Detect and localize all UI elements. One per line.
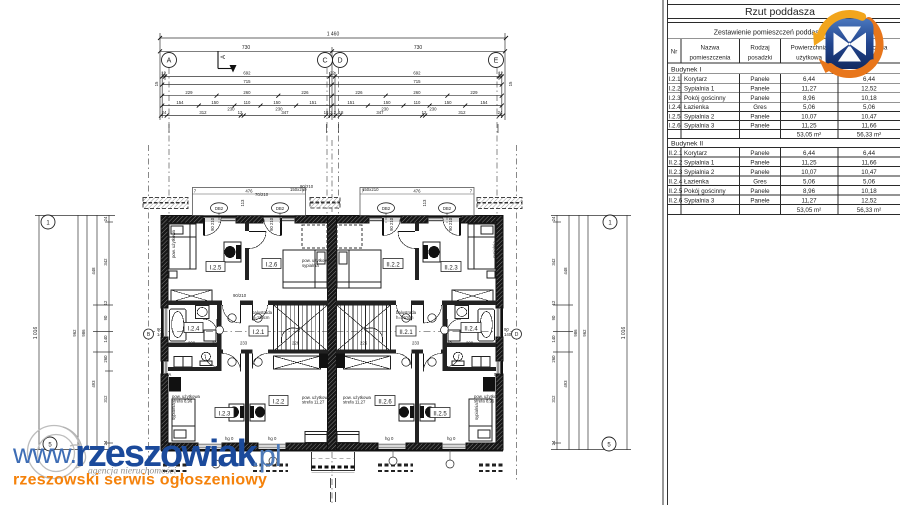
svg-text:11,27: 11,27 (801, 85, 817, 92)
svg-text:sypialnia: sypialnia (474, 403, 479, 420)
svg-text:11,25: 11,25 (801, 123, 817, 130)
svg-text:sypialnia: sypialnia (302, 263, 319, 268)
svg-text:476: 476 (245, 189, 253, 194)
svg-text:11,66: 11,66 (861, 159, 877, 166)
svg-text:I.2.5: I.2.5 (210, 265, 222, 271)
svg-text:sypialnia: sypialnia (171, 403, 176, 420)
svg-text:I.2.5: I.2.5 (669, 113, 682, 120)
svg-text:strefa 11,27: strefa 11,27 (343, 400, 366, 405)
svg-text:Panele: Panele (750, 113, 770, 120)
svg-text:150: 150 (273, 100, 281, 105)
svg-text:15: 15 (508, 81, 513, 86)
svg-text:D: D (337, 58, 342, 65)
svg-text:1 016: 1 016 (621, 327, 627, 340)
svg-text:493: 493 (91, 380, 96, 388)
svg-text:347: 347 (281, 110, 289, 115)
svg-text:Powierzchnia: Powierzchnia (791, 45, 828, 52)
svg-text:15: 15 (154, 81, 159, 86)
svg-text:90/210: 90/210 (233, 293, 247, 298)
svg-text:Nr: Nr (671, 49, 678, 56)
svg-text:493: 493 (563, 380, 568, 388)
svg-text:D: D (515, 332, 519, 338)
svg-text:I.2.4: I.2.4 (669, 104, 682, 111)
svg-text:Panele: Panele (750, 197, 770, 204)
svg-text:Gres: Gres (753, 104, 766, 111)
svg-text:110: 110 (414, 100, 421, 105)
svg-text:użytkowa: użytkowa (796, 55, 822, 62)
svg-text:Nazwa: Nazwa (701, 45, 720, 52)
svg-text:C: C (322, 58, 327, 65)
svg-text:DB2: DB2 (443, 206, 452, 211)
svg-text:692: 692 (243, 71, 251, 76)
svg-text:11,66: 11,66 (861, 123, 877, 130)
svg-text:Rzut poddasza: Rzut poddasza (745, 6, 815, 18)
svg-text:DB2: DB2 (276, 206, 285, 211)
svg-text:986: 986 (81, 329, 86, 337)
svg-text:18: 18 (324, 110, 329, 115)
svg-text:Panele: Panele (750, 159, 770, 166)
svg-text:12,52: 12,52 (861, 197, 877, 204)
svg-text:113: 113 (422, 199, 427, 206)
svg-text:strefa 8,96: strefa 8,96 (474, 399, 495, 404)
svg-text:90: 90 (103, 315, 108, 320)
svg-text:476: 476 (413, 189, 421, 194)
svg-text:260: 260 (551, 355, 556, 363)
svg-text:A: A (221, 55, 227, 59)
svg-text:12: 12 (422, 110, 427, 115)
svg-text:II.2.5: II.2.5 (433, 411, 447, 417)
svg-text:151: 151 (309, 100, 317, 105)
svg-text:226: 226 (301, 90, 309, 95)
svg-text:II.2.3: II.2.3 (669, 169, 683, 176)
svg-text:www.: www. (12, 438, 77, 469)
svg-text:I.2.2: I.2.2 (669, 85, 682, 92)
svg-text:11,27: 11,27 (801, 197, 817, 204)
svg-text:22: 22 (330, 71, 335, 76)
svg-text:6,44: 6,44 (863, 150, 876, 157)
svg-text:6,44: 6,44 (803, 76, 816, 83)
svg-text:Sypialnia 2: Sypialnia 2 (684, 113, 715, 120)
svg-text:h=110cm: h=110cm (396, 315, 414, 320)
svg-text:pow. użytkowa: pow. użytkowa (171, 229, 176, 258)
svg-text:10,47: 10,47 (861, 169, 877, 176)
svg-text:962: 962 (582, 329, 587, 337)
svg-text:226: 226 (355, 90, 363, 95)
svg-text:Sypialnia 3: Sypialnia 3 (684, 197, 715, 204)
svg-text:151: 151 (347, 100, 355, 105)
svg-text:posadzki: posadzki (748, 55, 772, 62)
svg-text:10,07: 10,07 (801, 113, 817, 120)
svg-text:113: 113 (240, 199, 245, 206)
svg-text:Pokój gościnny: Pokój gościnny (684, 95, 727, 102)
svg-text:I.2.6: I.2.6 (266, 262, 278, 268)
svg-text:Panele: Panele (750, 169, 770, 176)
svg-text:53,05 m²: 53,05 m² (797, 132, 821, 139)
svg-text:Zestawienie pomieszczeń poddas: Zestawienie pomieszczeń poddasza (714, 30, 827, 37)
svg-text:Gres: Gres (753, 178, 766, 185)
svg-text:90: 90 (551, 315, 556, 320)
svg-text:I.2.1: I.2.1 (253, 330, 265, 336)
svg-text:II.2.4: II.2.4 (464, 326, 478, 332)
svg-text:730: 730 (242, 45, 251, 51)
svg-text:Panele: Panele (750, 123, 770, 130)
svg-text:strefa 8,96: strefa 8,96 (172, 399, 193, 404)
svg-text:Panele: Panele (750, 76, 770, 83)
svg-text:6,44: 6,44 (803, 150, 816, 157)
svg-text:Panele: Panele (750, 95, 770, 102)
svg-text:260: 260 (103, 355, 108, 363)
svg-text:II.2.4: II.2.4 (669, 178, 683, 185)
svg-text:962: 962 (72, 329, 77, 337)
svg-text:70/210: 70/210 (255, 192, 269, 197)
svg-text:12: 12 (161, 71, 166, 76)
svg-text:200: 200 (188, 341, 196, 346)
svg-text:12: 12 (238, 110, 243, 115)
svg-text:8,96: 8,96 (803, 188, 816, 195)
svg-text:II.2.1: II.2.1 (399, 330, 413, 336)
svg-text:312: 312 (199, 110, 207, 115)
svg-text:312: 312 (103, 395, 108, 403)
svg-text:Łazienka: Łazienka (684, 104, 709, 111)
svg-text:10,18: 10,18 (861, 95, 877, 102)
svg-text:260: 260 (243, 90, 251, 95)
svg-text:10,47: 10,47 (861, 113, 877, 120)
svg-text:347: 347 (376, 110, 384, 115)
svg-text:Sypialnia 2: Sypialnia 2 (684, 169, 715, 176)
svg-text:12: 12 (447, 341, 452, 346)
svg-text:24: 24 (551, 216, 556, 221)
svg-text:Korytarz: Korytarz (684, 76, 707, 83)
svg-text:730: 730 (414, 45, 423, 51)
svg-text:986: 986 (573, 329, 578, 337)
svg-text:II.2.2: II.2.2 (669, 159, 683, 166)
svg-text:140: 140 (103, 335, 108, 343)
svg-text:154: 154 (480, 100, 488, 105)
svg-text:pomieszczenia: pomieszczenia (690, 55, 731, 62)
svg-text:12: 12 (498, 71, 503, 76)
svg-text:12: 12 (212, 341, 217, 346)
svg-text:24: 24 (551, 440, 556, 445)
svg-text:24: 24 (162, 110, 167, 115)
svg-text:260: 260 (413, 90, 421, 95)
svg-text:Łazienka: Łazienka (684, 178, 709, 185)
svg-text:12: 12 (103, 300, 108, 305)
svg-text:140: 140 (157, 332, 165, 337)
svg-text:II.2.5: II.2.5 (669, 188, 683, 195)
svg-text:90 210: 90 210 (210, 217, 215, 231)
svg-text:90 210: 90 210 (448, 217, 453, 231)
svg-text:110: 110 (244, 100, 251, 105)
svg-text:II.2.6: II.2.6 (669, 197, 683, 204)
svg-text:5A: 5A (494, 372, 499, 377)
svg-text:Budynek II: Budynek II (671, 141, 703, 148)
svg-text:715: 715 (413, 79, 421, 84)
svg-text:53,05 m²: 53,05 m² (797, 207, 821, 214)
svg-text:E: E (494, 58, 499, 65)
svg-text:715: 715 (243, 79, 251, 84)
svg-text:90 210: 90 210 (269, 217, 274, 231)
svg-text:I.2.3: I.2.3 (669, 95, 682, 102)
svg-text:140: 140 (504, 332, 512, 337)
svg-text:8,96: 8,96 (803, 95, 816, 102)
svg-text:I.2.3: I.2.3 (219, 411, 231, 417)
svg-text:Sypialnia 3: Sypialnia 3 (684, 123, 715, 130)
svg-text:312: 312 (551, 395, 556, 403)
svg-text:II.2.2: II.2.2 (386, 262, 400, 268)
svg-text:6,44: 6,44 (863, 76, 876, 83)
svg-text:sypialnia: sypialnia (492, 241, 497, 258)
svg-text:230: 230 (429, 106, 437, 111)
svg-text:226: 226 (360, 341, 368, 346)
svg-text:strefa 11,27: strefa 11,27 (302, 400, 325, 405)
svg-text:I.2.6: I.2.6 (669, 123, 682, 130)
svg-text:I.2.2: I.2.2 (273, 399, 285, 405)
svg-text:DB2: DB2 (382, 206, 391, 211)
svg-text:342: 342 (551, 258, 556, 266)
svg-text:90 210: 90 210 (389, 217, 394, 231)
svg-text:200: 200 (466, 341, 474, 346)
svg-text:312: 312 (458, 110, 466, 115)
svg-text:10,07: 10,07 (801, 169, 817, 176)
svg-text:I.2.4: I.2.4 (188, 326, 200, 332)
svg-text:Panele: Panele (750, 188, 770, 195)
svg-text:Panele: Panele (750, 85, 770, 92)
svg-text:I.2.1: I.2.1 (669, 76, 682, 83)
svg-text:rzeszowski serwis ogłoszeniowy: rzeszowski serwis ogłoszeniowy (13, 472, 267, 489)
svg-text:1 016: 1 016 (33, 327, 39, 340)
svg-text:233: 233 (240, 341, 248, 346)
svg-text:10,18: 10,18 (861, 188, 877, 195)
svg-text:hg 0: hg 0 (447, 436, 456, 441)
svg-text:56,33 m²: 56,33 m² (857, 132, 881, 139)
svg-text:154: 154 (176, 100, 184, 105)
svg-text:11,25: 11,25 (801, 159, 817, 166)
svg-text:Panele: Panele (750, 150, 770, 157)
svg-text:II.2.3: II.2.3 (444, 265, 458, 271)
svg-text:229: 229 (185, 90, 193, 95)
svg-text:Sypialnia 1: Sypialnia 1 (684, 159, 715, 166)
svg-text:140: 140 (551, 335, 556, 343)
svg-text:12: 12 (551, 300, 556, 305)
svg-text:A: A (167, 58, 172, 65)
svg-text:Rodzaj: Rodzaj (750, 45, 769, 52)
svg-text:5,06: 5,06 (803, 178, 816, 185)
svg-text:90/210: 90/210 (300, 184, 314, 189)
svg-text:II.2.6: II.2.6 (378, 399, 392, 405)
svg-text:24: 24 (103, 216, 108, 221)
svg-text:.pl: .pl (251, 438, 281, 473)
svg-text:1 460: 1 460 (327, 32, 340, 38)
svg-text:Budynek I: Budynek I (671, 67, 701, 74)
svg-text:II.2.1: II.2.1 (669, 150, 683, 157)
svg-text:5,06: 5,06 (863, 104, 876, 111)
svg-text:DB2: DB2 (215, 206, 224, 211)
svg-text:230: 230 (227, 106, 235, 111)
svg-text:Korytarz: Korytarz (684, 150, 707, 157)
svg-text:Pokój gościnny: Pokój gościnny (684, 188, 727, 195)
svg-text:692: 692 (413, 71, 421, 76)
svg-text:229: 229 (470, 90, 478, 95)
svg-text:Sypialnia 1: Sypialnia 1 (684, 85, 715, 92)
svg-text:56,33 m²: 56,33 m² (857, 207, 881, 214)
svg-text:150: 150 (444, 100, 452, 105)
svg-text:18: 18 (339, 110, 344, 115)
svg-text:24: 24 (498, 110, 503, 115)
svg-text:2,2: 2,2 (330, 110, 337, 115)
svg-text:150: 150 (383, 100, 391, 105)
svg-text:5A: 5A (166, 372, 171, 377)
svg-text:448: 448 (563, 267, 568, 275)
svg-text:150: 150 (211, 100, 219, 105)
svg-text:5,06: 5,06 (863, 178, 876, 185)
svg-text:233: 233 (412, 341, 420, 346)
svg-text:12,52: 12,52 (861, 85, 877, 92)
svg-text:5,06: 5,06 (803, 104, 816, 111)
svg-text:226: 226 (292, 341, 300, 346)
svg-text:448: 448 (91, 267, 96, 275)
svg-text:hg 0: hg 0 (385, 436, 394, 441)
svg-text:h=110cm: h=110cm (252, 315, 270, 320)
svg-text:342: 342 (103, 258, 108, 266)
